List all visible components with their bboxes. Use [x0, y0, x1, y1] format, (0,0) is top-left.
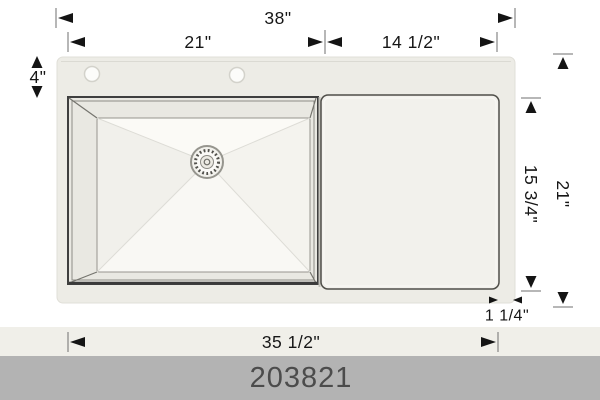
arrow-up-icon — [558, 57, 569, 69]
sink-bowl — [68, 97, 318, 284]
dim-overall-width-label: 38" — [264, 8, 291, 28]
arrow-right-icon — [308, 37, 323, 47]
dim-edge-offset-label: 1 1/4" — [485, 308, 529, 325]
arrow-left-icon — [70, 37, 85, 47]
arrow-down-icon — [526, 276, 537, 288]
drain — [191, 146, 223, 178]
dim-overall-width: 38" — [56, 8, 515, 28]
faucet-hole — [85, 67, 100, 82]
dim-overall-depth-label: 21" — [553, 180, 573, 207]
diagram-canvas: 38" 21" 14 1/2" 4" 15 3/4" 21" — [0, 0, 600, 400]
arrow-left-icon — [58, 13, 73, 23]
dim-bowl-width-label: 21" — [184, 32, 211, 52]
model-number: 203821 — [250, 362, 353, 394]
drainboard-panel — [321, 95, 499, 289]
dim-drainboard-depth-label: 15 3/4" — [521, 165, 541, 223]
arrow-right-icon — [480, 37, 495, 47]
sink-top-view — [57, 57, 515, 303]
dim-bowl-and-drainboard-width: 21" 14 1/2" — [68, 30, 497, 54]
dim-deck-depth: 4" — [30, 56, 47, 98]
arrow-left-icon — [327, 37, 342, 47]
dim-overall-depth: 21" — [553, 54, 573, 307]
dim-drainboard-width-label: 14 1/2" — [382, 32, 440, 52]
arrow-up-icon — [526, 101, 537, 113]
model-number-bar: 203821 — [0, 356, 600, 400]
arrow-down-icon — [558, 292, 569, 304]
sink-dimension-diagram: 38" 21" 14 1/2" 4" 15 3/4" 21" — [0, 0, 600, 400]
dim-drainboard-depth: 15 3/4" — [521, 98, 541, 291]
faucet-hole — [230, 68, 245, 83]
dim-deck-depth-label: 4" — [30, 67, 47, 87]
drainboard — [320, 95, 500, 289]
dim-inner-width-label: 35 1/2" — [262, 332, 320, 352]
arrow-right-icon — [498, 13, 513, 23]
arrow-down-icon — [32, 86, 43, 98]
